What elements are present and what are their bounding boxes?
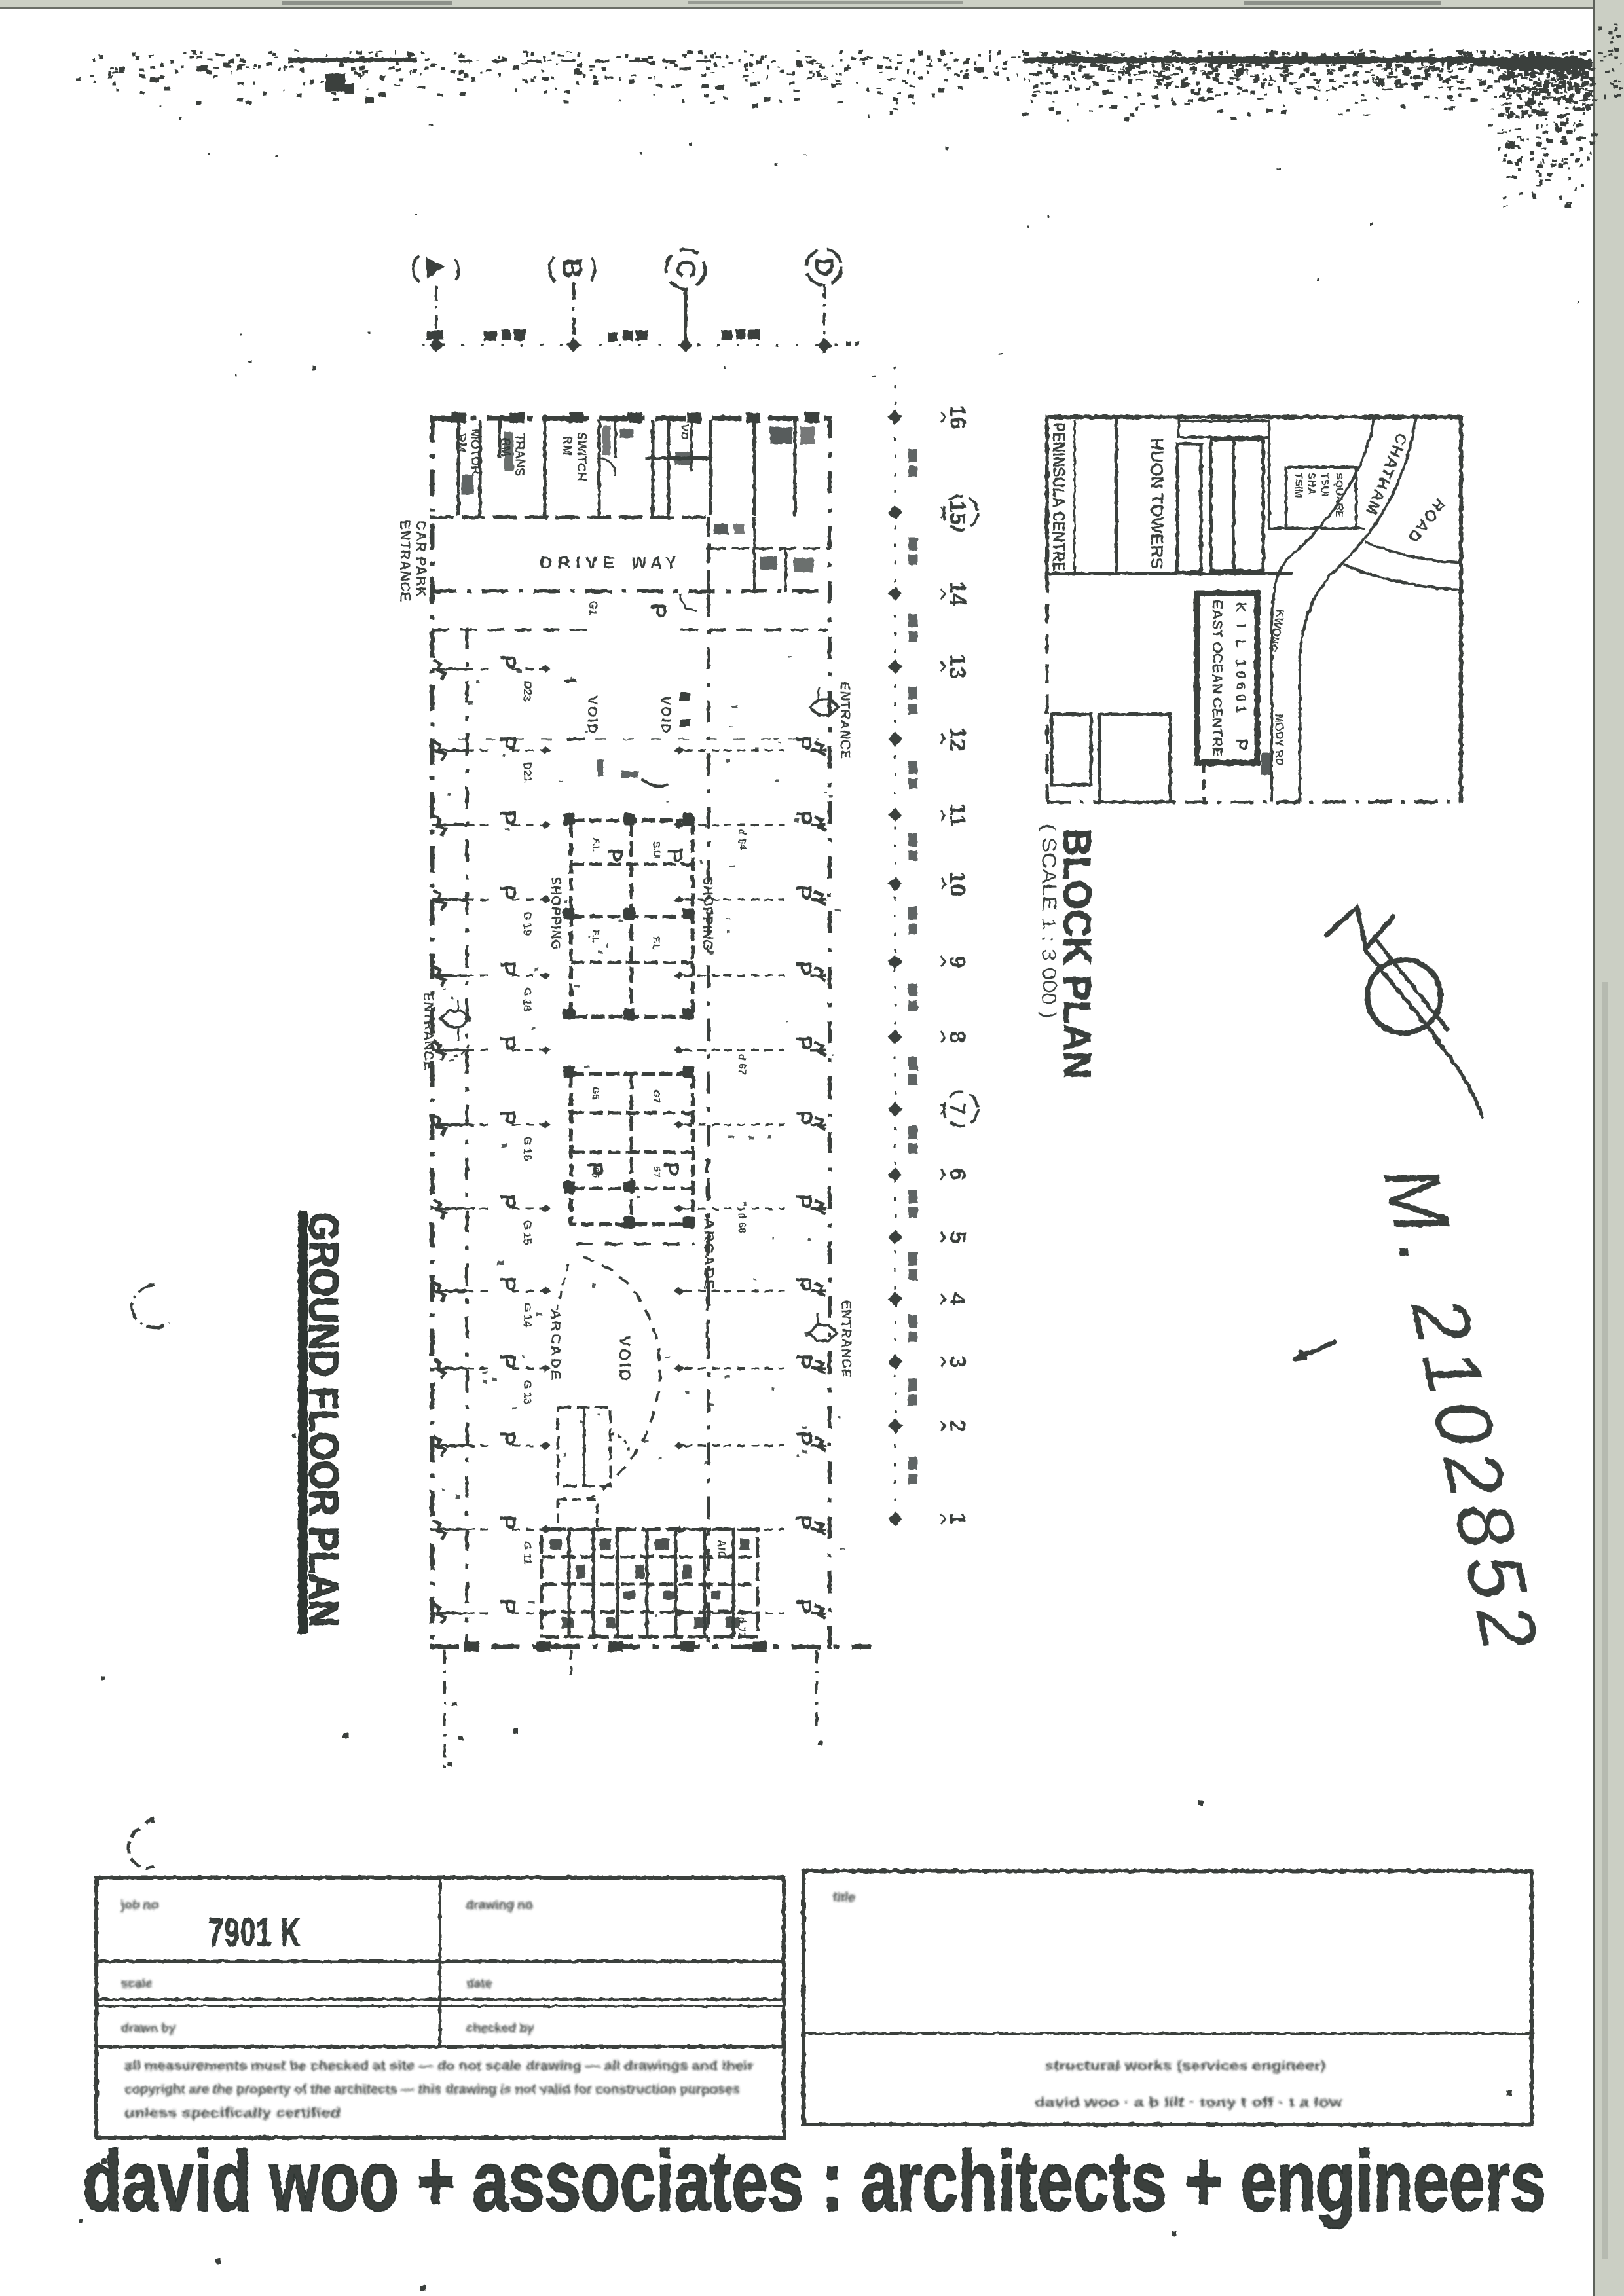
svg-text:drawing no: drawing no <box>466 1899 532 1912</box>
svg-text:P: P <box>663 848 687 862</box>
svg-text:P: P <box>495 736 520 751</box>
svg-text:B: B <box>557 259 588 278</box>
svg-text:K I L 10601: K I L 10601 <box>1233 602 1248 717</box>
svg-text:D23: D23 <box>521 681 534 701</box>
svg-text:2: 2 <box>945 1420 970 1432</box>
svg-text:7: 7 <box>945 1103 970 1116</box>
svg-text:EAST OCEAN CENTRE: EAST OCEAN CENTRE <box>1209 600 1225 757</box>
svg-text:P: P <box>791 1194 816 1209</box>
svg-text:d 67: d 67 <box>736 1054 747 1075</box>
svg-text:11: 11 <box>945 803 970 827</box>
svg-text:G7: G7 <box>651 1090 662 1103</box>
svg-text:3: 3 <box>945 1356 970 1368</box>
svg-text:DRIVE: DRIVE <box>540 554 619 572</box>
svg-text:CAR PARK: CAR PARK <box>413 520 428 597</box>
svg-text:D: D <box>809 258 838 277</box>
svg-text:F.L: F.L <box>651 936 662 950</box>
svg-text:SHOPPING: SHOPPING <box>700 877 715 951</box>
svg-text:david woo · a b lilt · tony t: david woo · a b lilt · tony t off · t a … <box>1035 2096 1343 2110</box>
svg-text:P: P <box>1231 738 1251 751</box>
svg-text:WAY: WAY <box>631 554 681 572</box>
svg-text:P: P <box>791 1599 816 1614</box>
svg-text:P: P <box>791 1277 816 1292</box>
svg-text:GROUND FLOOR PLAN: GROUND FLOOR PLAN <box>301 1212 346 1627</box>
svg-text:ENTRANCE: ENTRANCE <box>397 520 413 602</box>
svg-text:MOTOR: MOTOR <box>468 429 482 475</box>
svg-text:P: P <box>791 1354 816 1369</box>
svg-text:RM: RM <box>560 436 574 456</box>
svg-text:TRANS: TRANS <box>513 433 526 476</box>
svg-text:VOID: VOID <box>616 1336 633 1383</box>
svg-text:all measurements must be check: all measurements must be checked at site… <box>124 2059 753 2073</box>
svg-text:F.L: F.L <box>590 838 601 852</box>
svg-text:ENTRANCE: ENTRANCE <box>838 682 852 759</box>
svg-text:P: P <box>495 1515 520 1530</box>
svg-text:ENTRANCE: ENTRANCE <box>421 993 435 1070</box>
svg-text:9: 9 <box>945 956 970 968</box>
svg-text:P: P <box>495 1599 520 1614</box>
svg-text:A/C: A/C <box>716 1540 727 1558</box>
svg-text:P: P <box>495 811 520 826</box>
svg-text:( SCALE 1 : 3 000 ): ( SCALE 1 : 3 000 ) <box>1038 824 1060 1019</box>
svg-text:SHOPPING: SHOPPING <box>548 877 563 951</box>
svg-text:BLOCK PLAN: BLOCK PLAN <box>1056 829 1098 1079</box>
svg-text:structural works (services eng: structural works (services engineer) <box>1044 2059 1326 2073</box>
svg-text:d 64: d 64 <box>736 829 747 850</box>
svg-text:D21: D21 <box>521 762 534 782</box>
svg-text:P: P <box>495 1194 520 1209</box>
svg-text:P: P <box>659 1162 683 1176</box>
svg-text:10: 10 <box>945 871 970 896</box>
svg-text:P: P <box>791 811 816 826</box>
svg-text:P: P <box>603 848 627 862</box>
svg-text:G 15: G 15 <box>521 1220 534 1245</box>
svg-text:G 19: G 19 <box>521 911 534 936</box>
svg-text:G 11: G 11 <box>521 1541 534 1565</box>
svg-text:P: P <box>495 1277 520 1292</box>
svg-text:drawn by: drawn by <box>121 2022 176 2035</box>
svg-text:title: title <box>833 1891 855 1904</box>
svg-text:P: P <box>791 1110 816 1125</box>
svg-text:copyright are the property of: copyright are the property of the archit… <box>124 2083 740 2097</box>
svg-text:scale: scale <box>121 1977 153 1991</box>
svg-text:P: P <box>495 655 520 670</box>
svg-text:HUON TOWERS: HUON TOWERS <box>1147 438 1167 569</box>
svg-text:P: P <box>791 1515 816 1530</box>
svg-text:12: 12 <box>945 727 970 752</box>
svg-text:checked by: checked by <box>466 2022 534 2035</box>
svg-text:P: P <box>495 961 520 976</box>
svg-text:SWITCH: SWITCH <box>574 432 588 481</box>
svg-text:P: P <box>646 604 671 619</box>
svg-text:TSUI: TSUI <box>1319 473 1330 496</box>
svg-text:ARCADE: ARCADE <box>548 1309 563 1381</box>
svg-text:P: P <box>791 1036 816 1051</box>
svg-text:15: 15 <box>945 500 970 525</box>
svg-text:G1: G1 <box>587 601 599 616</box>
svg-text:F.L: F.L <box>590 930 601 943</box>
svg-text:P: P <box>791 961 816 976</box>
svg-text:G 18: G 18 <box>521 987 534 1011</box>
svg-text:d 68: d 68 <box>736 1212 747 1233</box>
svg-text:PENINSULA CENTRE: PENINSULA CENTRE <box>1049 422 1069 572</box>
svg-text:6: 6 <box>945 1169 970 1181</box>
svg-text:P: P <box>495 1354 520 1369</box>
svg-text:P: P <box>791 736 816 751</box>
svg-text:8: 8 <box>945 1031 970 1044</box>
svg-text:C: C <box>671 260 700 279</box>
svg-text:5: 5 <box>945 1231 970 1244</box>
svg-text:13: 13 <box>945 654 970 679</box>
svg-text:RM: RM <box>454 433 468 453</box>
svg-text:P: P <box>495 1036 520 1051</box>
svg-text:14: 14 <box>945 581 970 606</box>
svg-text:david woo + associates : archi: david woo + associates : architects + en… <box>83 2133 1546 2229</box>
svg-text:P: P <box>583 1162 607 1176</box>
svg-text:P: P <box>495 1431 520 1446</box>
svg-text:job no: job no <box>120 1899 158 1912</box>
svg-text:ENTRANCE: ENTRANCE <box>839 1300 853 1378</box>
svg-text:TSIM: TSIM <box>1293 473 1304 498</box>
svg-text:4: 4 <box>945 1293 970 1305</box>
svg-text:date: date <box>466 1977 492 1991</box>
svg-text:G5: G5 <box>590 1087 601 1100</box>
svg-text:P: P <box>791 1431 816 1446</box>
svg-text:S.L: S.L <box>651 841 662 856</box>
svg-text:P: P <box>495 1110 520 1125</box>
svg-text:unless specifically certified: unless specifically certified <box>124 2106 341 2121</box>
svg-text:VOID: VOID <box>658 696 673 735</box>
svg-text:G 14: G 14 <box>521 1303 534 1327</box>
svg-text:SHA: SHA <box>1306 473 1317 495</box>
svg-text:VOID: VOID <box>585 696 600 735</box>
svg-text:MODY RD: MODY RD <box>1273 714 1285 766</box>
svg-text:1: 1 <box>945 1513 970 1525</box>
svg-text:P: P <box>791 885 816 900</box>
svg-text:16: 16 <box>945 405 970 429</box>
svg-text:G 13: G 13 <box>521 1380 534 1404</box>
svg-text:VD: VD <box>678 424 691 440</box>
svg-text:P: P <box>495 885 520 900</box>
svg-text:7901 K: 7901 K <box>208 1910 301 1954</box>
svg-text:G 16: G 16 <box>521 1137 534 1161</box>
